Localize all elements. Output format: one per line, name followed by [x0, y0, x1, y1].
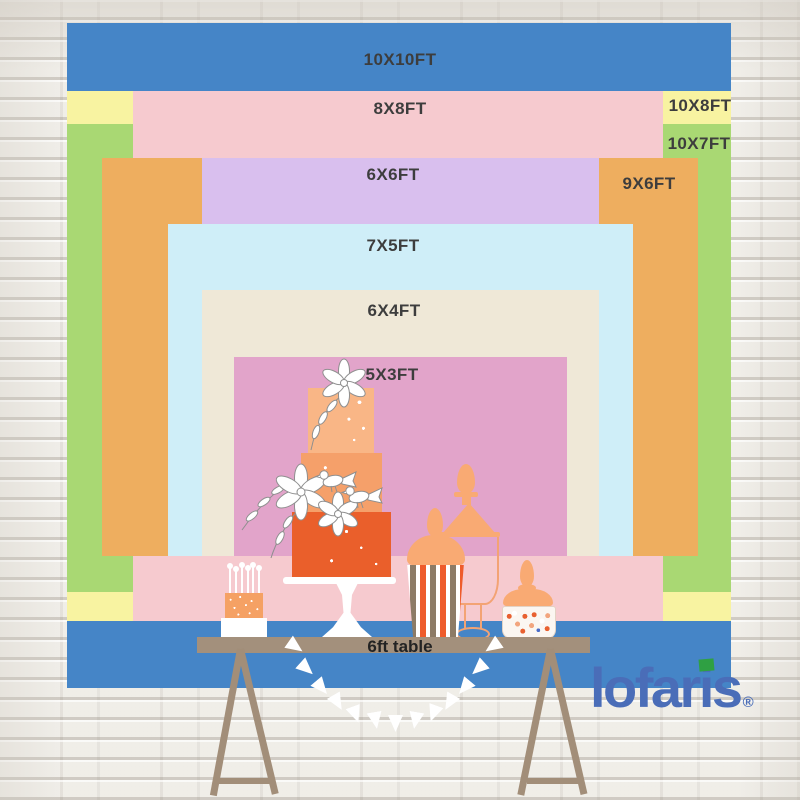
cake-stand-plate [283, 577, 396, 584]
striped-jar-finial [427, 508, 443, 537]
flower-icon-top [320, 359, 367, 407]
size-label-7x5: 7X5FT [323, 236, 463, 256]
lofaris-logo: lofaris® [590, 660, 754, 716]
jar-glass-stem [464, 603, 482, 629]
jar-finial [457, 464, 475, 494]
candle-icon [241, 567, 243, 594]
size-label-6x6: 6X6FT [323, 165, 463, 185]
registered-trademark-icon: ® [743, 694, 754, 711]
small-cake-top-tier [225, 593, 263, 620]
size-label-10x8: 10X8FT [630, 96, 770, 116]
candy-cup-finial [520, 560, 534, 587]
logo-letter-i: i [699, 660, 712, 716]
product-image-canvas: 10X10FT 8X8FT 10X8FT 10X7FT 6X6FT 9X6FT … [0, 0, 800, 800]
jar-neck [462, 496, 471, 505]
logo-text-end: s [712, 656, 741, 719]
logo-green-accent-icon [698, 658, 714, 671]
striped-jar-body [406, 565, 465, 637]
table-size-label: 6ft table [335, 637, 465, 657]
cake-florals-illustration [228, 350, 408, 565]
table-leg-crossbar [527, 778, 579, 784]
size-label-10x10: 10X10FT [330, 50, 470, 70]
size-label-9x6: 9X6FT [579, 174, 719, 194]
candle-icon [252, 567, 254, 594]
size-label-10x7: 10X7FT [629, 134, 769, 154]
size-label-6x4: 6X4FT [324, 301, 464, 321]
logo-text-start: lofar [590, 656, 699, 719]
table-leg-crossbar [219, 778, 271, 784]
size-label-8x8: 8X8FT [330, 99, 470, 119]
candle-icon [229, 568, 231, 595]
candy-cup-bowl [502, 606, 556, 639]
small-cake-base [221, 618, 267, 637]
candy-cup-lid [503, 589, 553, 606]
